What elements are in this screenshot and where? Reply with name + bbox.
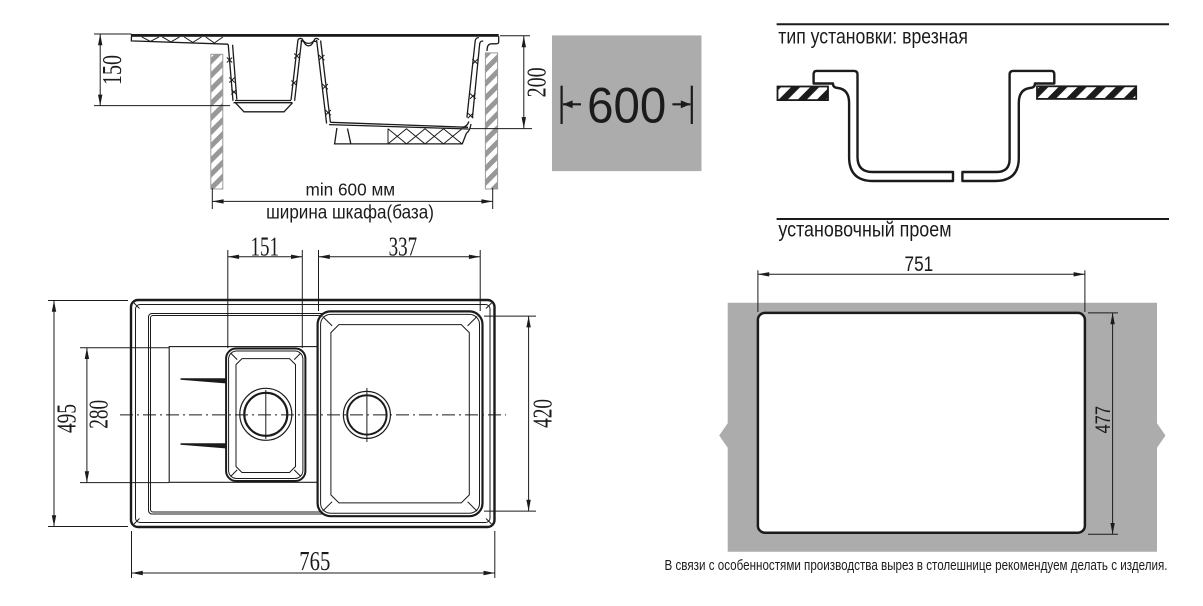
svg-text:337: 337 <box>389 231 418 261</box>
svg-text:ширина шкафа(база): ширина шкафа(база) <box>266 203 434 224</box>
svg-text:495: 495 <box>52 404 82 433</box>
svg-text:751: 751 <box>905 253 934 276</box>
svg-text:min 600 мм: min 600 мм <box>306 180 396 200</box>
svg-text:477: 477 <box>1092 406 1115 434</box>
svg-text:765: 765 <box>299 546 330 576</box>
svg-text:150: 150 <box>97 55 127 85</box>
svg-text:В связи с особенностями произв: В связи с особенностями производства выр… <box>665 557 1168 574</box>
svg-text:600: 600 <box>587 78 666 134</box>
svg-text:тип установки: врезная: тип установки: врезная <box>778 25 968 49</box>
svg-text:280: 280 <box>84 400 114 429</box>
svg-text:200: 200 <box>522 67 552 97</box>
svg-text:420: 420 <box>527 399 557 428</box>
svg-text:151: 151 <box>250 231 279 261</box>
svg-text:установочный проем: установочный проем <box>778 217 951 241</box>
